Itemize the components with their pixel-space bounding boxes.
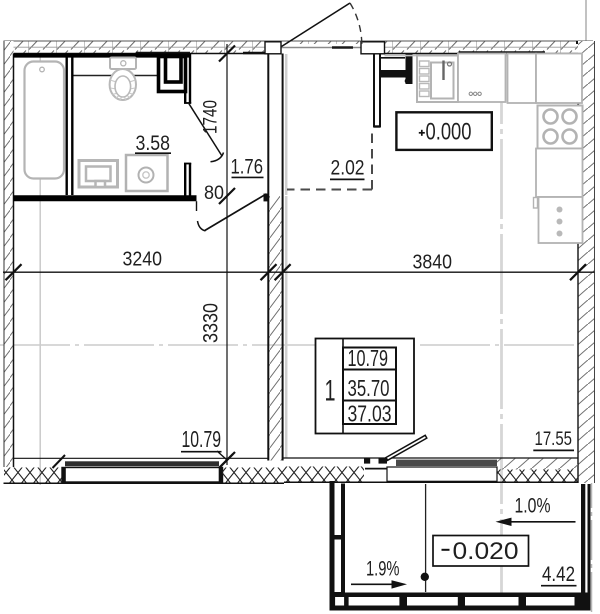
svg-text:2.02: 2.02 [331,157,365,180]
svg-text:3840: 3840 [413,252,453,274]
svg-text:10.79: 10.79 [348,345,389,371]
svg-text:1740: 1740 [201,100,222,134]
svg-text:1.0%: 1.0% [515,495,551,518]
svg-text:1.9%: 1.9% [366,558,400,581]
svg-text:1: 1 [325,375,336,408]
svg-text:3.58: 3.58 [136,132,171,155]
svg-text:1.76: 1.76 [231,156,264,179]
svg-text:35.70: 35.70 [348,375,390,401]
svg-text:3240: 3240 [123,249,163,271]
svg-text:10.79: 10.79 [182,426,222,452]
svg-text:4.42: 4.42 [542,563,575,586]
svg-text:17.55: 17.55 [535,428,573,450]
svg-text:80: 80 [204,183,224,204]
svg-text:0.020: 0.020 [453,538,519,565]
svg-text:3330: 3330 [200,303,223,343]
svg-text:0.000: 0.000 [426,119,472,146]
svg-text:37.03: 37.03 [348,401,392,427]
